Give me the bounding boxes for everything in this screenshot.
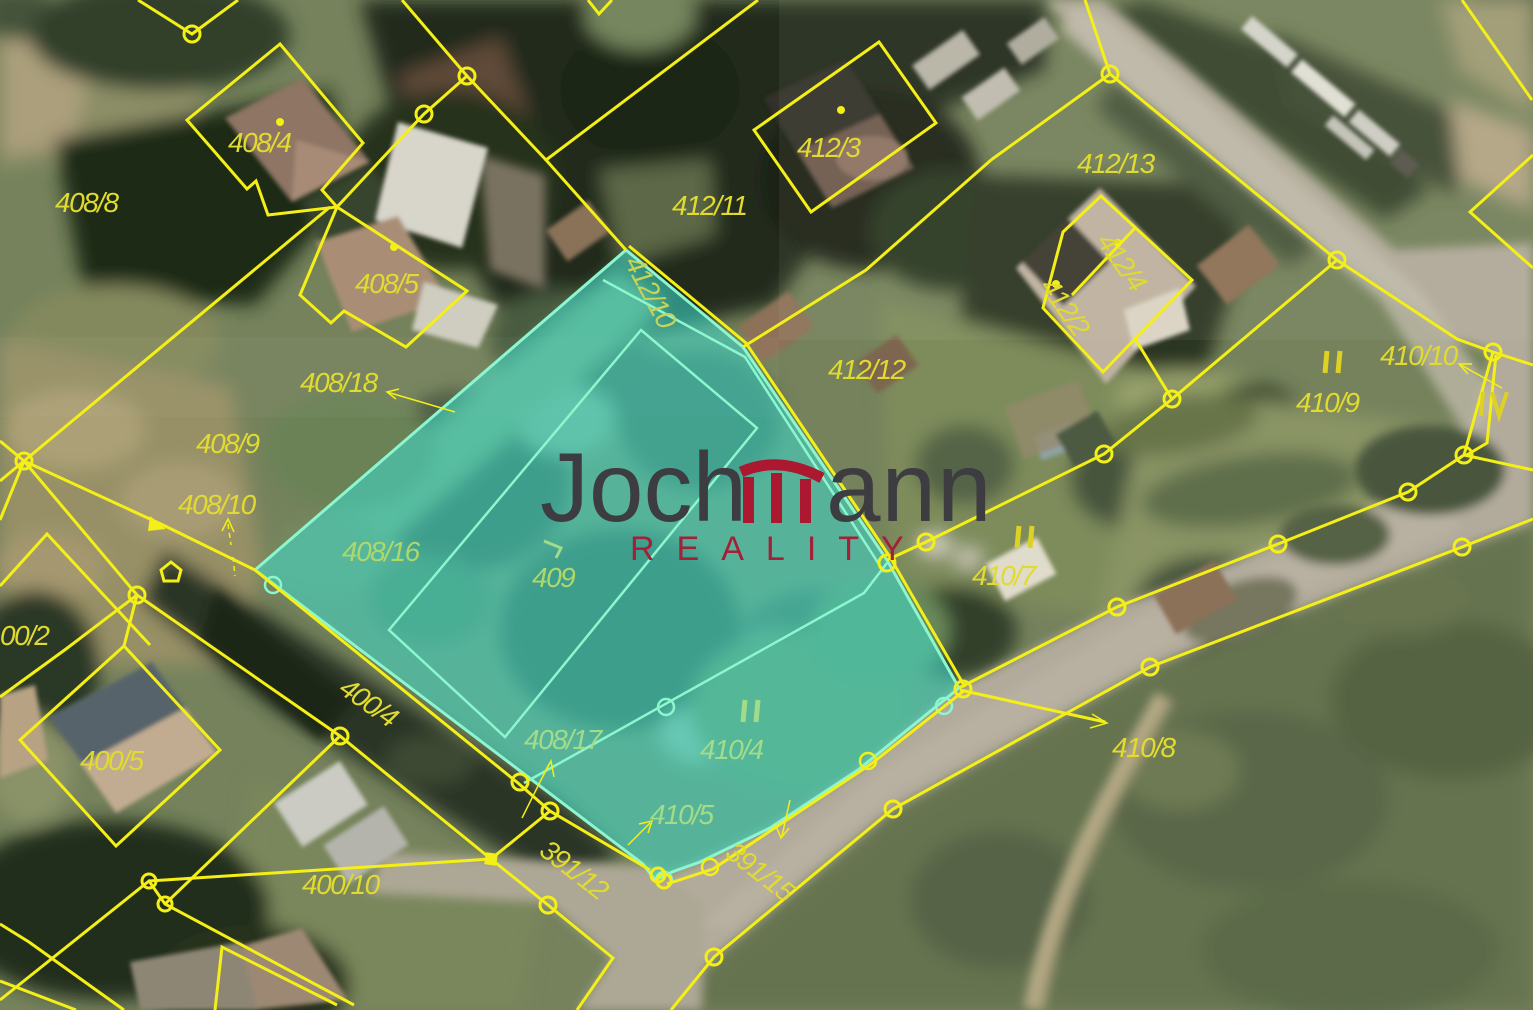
svg-text:408/18: 408/18 [300,367,379,398]
svg-text:REALITY: REALITY [630,530,926,568]
svg-text:408/17: 408/17 [524,724,604,755]
svg-text:412/11: 412/11 [672,190,747,221]
svg-text:410/8: 410/8 [1112,732,1176,763]
svg-text:408/16: 408/16 [342,536,421,567]
svg-text:412/12: 412/12 [828,354,907,385]
svg-text:410/7: 410/7 [972,560,1037,591]
svg-text:408/10: 408/10 [178,489,257,520]
svg-text:Joch: Joch [540,432,747,542]
svg-text:408/9: 408/9 [196,428,259,459]
svg-text:410/10: 410/10 [1380,340,1459,371]
svg-text:408/8: 408/8 [55,187,119,218]
svg-text:410/4: 410/4 [700,734,763,765]
svg-text:408/5: 408/5 [355,268,419,299]
svg-text:412/3: 412/3 [797,132,861,163]
svg-text:410/5: 410/5 [650,799,714,830]
svg-text:412/13: 412/13 [1077,148,1156,179]
svg-text:400/5: 400/5 [80,745,144,776]
svg-text:408/4: 408/4 [228,127,291,158]
svg-text:409: 409 [532,562,575,593]
svg-text:400/10: 400/10 [302,869,381,900]
svg-text:410/9: 410/9 [1296,387,1359,418]
svg-text:ann: ann [826,432,993,542]
svg-text:00/2: 00/2 [0,620,50,651]
